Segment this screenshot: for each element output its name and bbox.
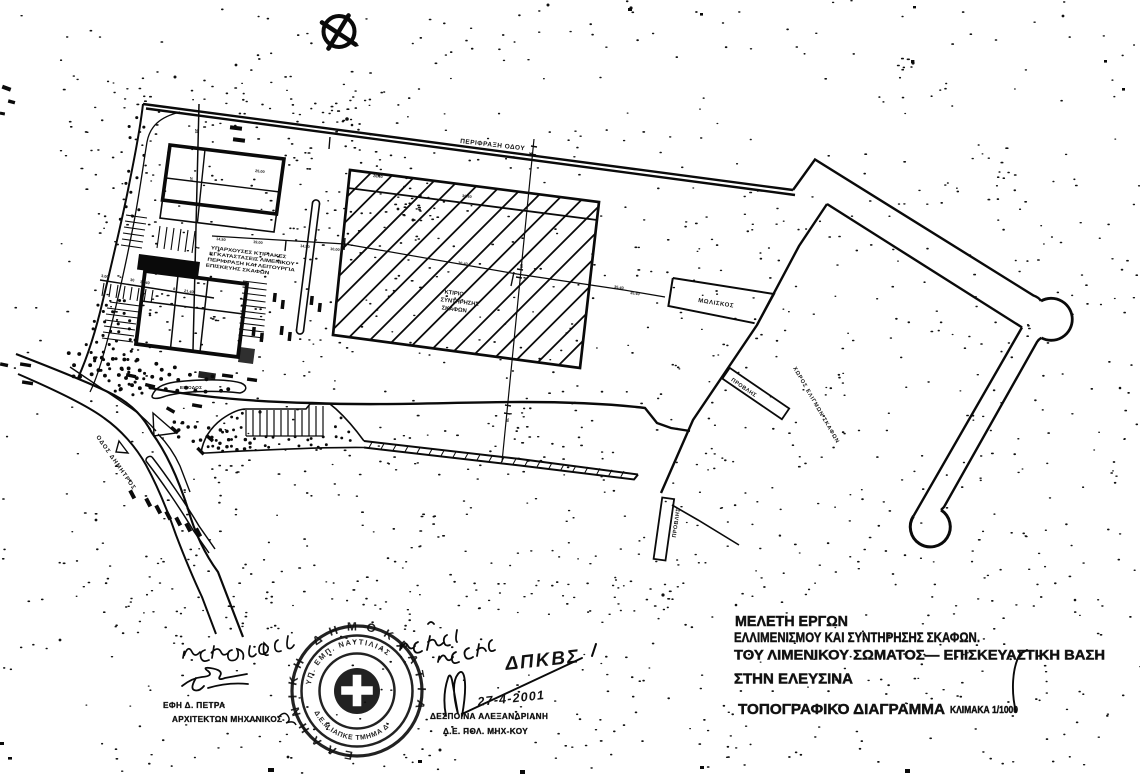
svg-text:ΣΤΗΝ ΕΛΕΥΣΙΝΑ: ΣΤΗΝ ΕΛΕΥΣΙΝΑ bbox=[734, 672, 853, 688]
svg-text:ΜΕΛΕΤΗ ΕΡΓΩΝ: ΜΕΛΕΤΗ ΕΡΓΩΝ bbox=[735, 614, 848, 630]
svg-text:ΤΟΥ ΛΙΜΕΝΙΚΟΥ ΣΩΜΑΤΟΣ— ΕΠΙΣΚΕΥ: ΤΟΥ ΛΙΜΕΝΙΚΟΥ ΣΩΜΑΤΟΣ— ΕΠΙΣΚΕΥΑΣΤΙΚΗ ΒΑΣ… bbox=[734, 647, 1105, 663]
svg-text:25: 25 bbox=[194, 129, 198, 133]
svg-text:ΔΕΣΠΟΙΝΑ ΑΛΕΞΑΝΔΡΙΑΝΗ: ΔΕΣΠΟΙΝΑ ΑΛΕΞΑΝΔΡΙΑΝΗ bbox=[430, 712, 548, 721]
svg-text:30: 30 bbox=[519, 264, 523, 269]
svg-text:25: 25 bbox=[189, 177, 193, 181]
svg-text:ΤΟΠΟΓΡΑΦΙΚΟ ΔΙΑΓΡΑΜΜΑ: ΤΟΠΟΓΡΑΦΙΚΟ ΔΙΑΓΡΑΜΜΑ bbox=[738, 702, 945, 718]
svg-text:ΑΡΧΙΤΕΚΤΩΝ ΜΗΧΑΝΙΚΟΣ: ΑΡΧΙΤΕΚΤΩΝ ΜΗΧΑΝΙΚΟΣ bbox=[172, 715, 282, 724]
svg-text:Δ.Ε. ΠΟΛ. ΜΗΧ-ΚΟΥ: Δ.Ε. ΠΟΛ. ΜΗΧ-ΚΟΥ bbox=[443, 727, 528, 736]
svg-text:ΚΛΙΜΑΚΑ 1/1000: ΚΛΙΜΑΚΑ 1/1000 bbox=[950, 705, 1018, 716]
svg-text:ΕΙΣΟΔΟΣ: ΕΙΣΟΔΟΣ bbox=[180, 385, 202, 390]
svg-text:30: 30 bbox=[130, 278, 135, 283]
svg-text:ΕΛΛΙΜΕΝΙΣΜΟΥ ΚΑΙ ΣΥΝΤΗΡΗΣΗΣ ΣΚ: ΕΛΛΙΜΕΝΙΣΜΟΥ ΚΑΙ ΣΥΝΤΗΡΗΣΗΣ ΣΚΑΦΩΝ. bbox=[734, 629, 980, 645]
svg-text:ΕΦΗ Δ. ΠΕΤΡΑ: ΕΦΗ Δ. ΠΕΤΡΑ bbox=[163, 701, 225, 710]
svg-text:30: 30 bbox=[505, 418, 509, 423]
